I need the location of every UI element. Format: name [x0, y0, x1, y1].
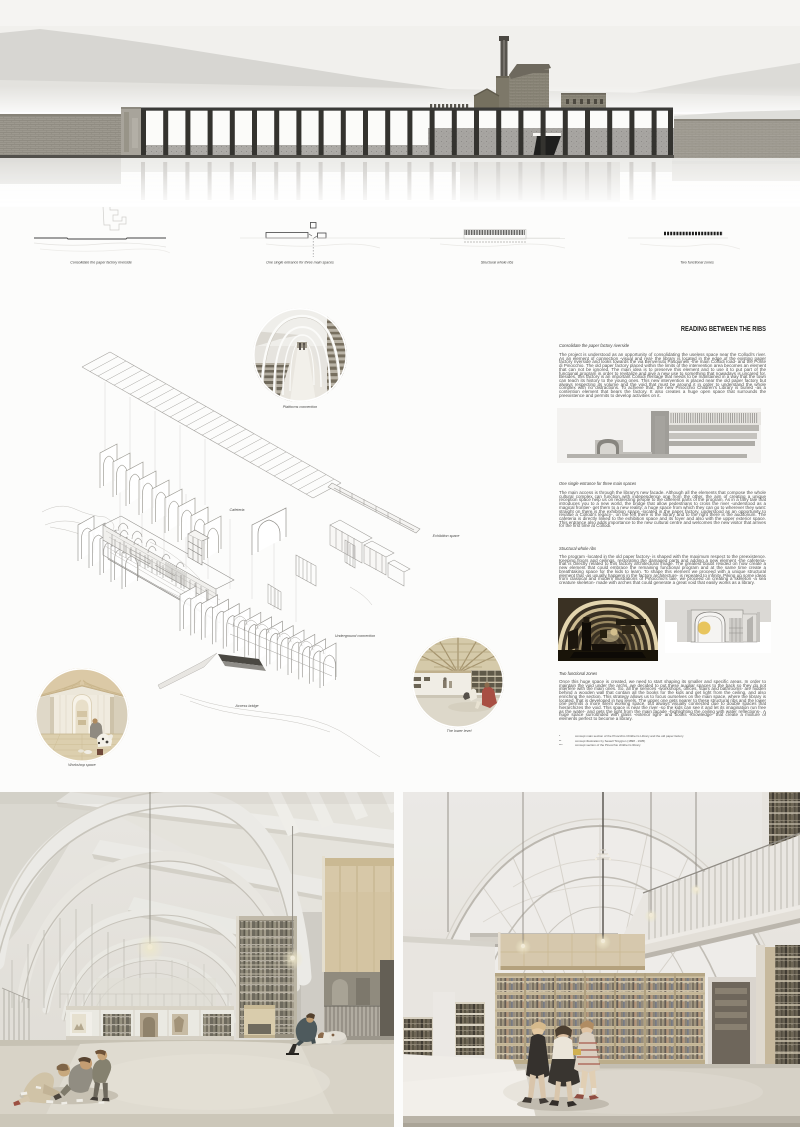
- svg-text:Access bridge: Access bridge: [234, 704, 258, 708]
- svg-text:Cafeteria: Cafeteria: [230, 508, 245, 512]
- svg-text:Platforms connection: Platforms connection: [283, 405, 317, 409]
- svg-text:Structural whole ribs: Structural whole ribs: [481, 261, 514, 265]
- svg-text:Two functional zones: Two functional zones: [680, 261, 714, 265]
- svg-text:Consolidate the paper factory: Consolidate the paper factory riverside: [70, 261, 132, 265]
- svg-text:The lower level: The lower level: [447, 729, 472, 733]
- svg-text:Underground connection: Underground connection: [335, 634, 375, 638]
- svg-text:One single entrance for three: One single entrance for three main space…: [266, 261, 334, 265]
- svg-text:Workshop space: Workshop space: [68, 763, 95, 767]
- svg-text:Exhibition space: Exhibition space: [433, 534, 460, 538]
